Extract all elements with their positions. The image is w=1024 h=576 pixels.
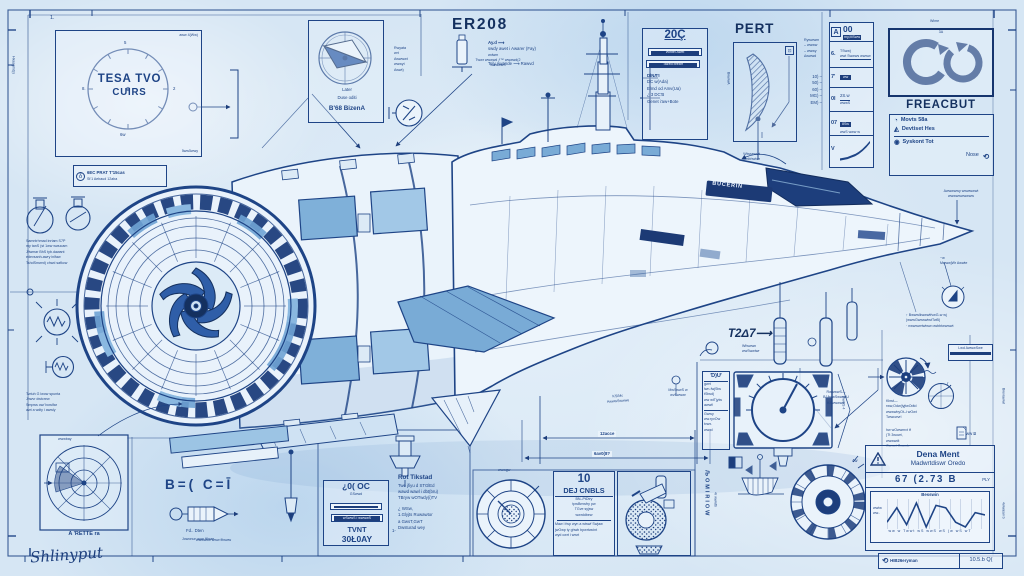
blueprint-sheet: aww 4(Ww) 5ww5wwy TESA TVO CUIRS 5 2 8. …	[0, 0, 1024, 576]
titleblock-chart: Besswin wwtwww.. ww w Twwt wS wwS wS (w …	[870, 491, 990, 543]
chart-r-label: r	[947, 381, 948, 387]
stamp-icon: ⟲	[882, 556, 888, 565]
pump-box	[617, 471, 691, 556]
panel-dial: aww 4(Ww) 5ww5wwy TESA TVO CUIRS 5 2 8. …	[55, 30, 202, 157]
chip-line2: St'1 Aebaud 12aba	[87, 177, 125, 182]
oc-box: ¿0( OC GSwwd wSwwS i wwwwS TVNT 30Ł0AY	[323, 480, 389, 546]
freacbut-box-tag: 3A	[890, 30, 992, 35]
dial-tick: 2	[173, 86, 175, 92]
nose-callout-top: Awwwwwy wwwwwwt wwwwwwwwww	[930, 189, 992, 200]
dim-callout: RwwwwS—BJAwwSwwwrUKSwwwww	[796, 390, 876, 406]
du-table: Ɗ)Ư gwrt lwn-fwjStw tStwd) ww wtTjylw aw…	[702, 371, 730, 450]
nose-mini-gauge	[942, 286, 964, 308]
freacbut-tiny-top: Wime	[930, 19, 939, 24]
er208-title: ER208	[452, 16, 508, 33]
freacbut-title: FREACBUT	[888, 99, 994, 112]
table-row: 07 8SwwwS www w	[830, 112, 873, 136]
tr-table: A 00my,MSww 6. TSww)wwt Swwws wwww 7' ww…	[829, 22, 874, 168]
titleblock-subtitle: Madwrtdiswr Oredo	[886, 460, 990, 469]
title-block: Dena Ment Madwrtdiswr Oredo 67 (2.73 B P…	[865, 445, 995, 551]
bottom-note: wwwwtiw www fitwww	[196, 538, 231, 543]
clock-icon: ◔	[894, 117, 898, 126]
rotate-icon: ⟲	[983, 152, 989, 161]
t2d7-note: T2Δ7⟶	[728, 328, 772, 341]
titleblock-title: Dena Ment	[886, 449, 990, 460]
radar-label: A 'RETTE ra	[44, 531, 124, 539]
vertical-strip-text: ЉOMIRIOW	[702, 470, 710, 517]
callout-mid: Wlwsewwt awtbhwtwr	[714, 152, 760, 163]
edge-text-left: Hkasgmd(s	[10, 56, 15, 74]
flask-notes: Samntrhmad inrtam S7P my tanS (st 1ww ww…	[26, 239, 110, 266]
pert-side-label: BwwwA	[725, 72, 730, 85]
dial-title2: CUIRS	[56, 87, 203, 99]
freacbut-box: 3A	[888, 28, 994, 97]
z0q-title: 20Ç	[643, 29, 707, 42]
table-row: 7' ww	[830, 68, 873, 88]
doc-label: ww Ƀ	[966, 431, 976, 437]
formula: B=( C=Ī	[165, 478, 233, 493]
corner-mark: 1.	[50, 15, 55, 23]
drawing-number: 67 (2.73 B	[870, 474, 982, 486]
footer-strip: ⟲ HIB26eryman 10.5.b Q(	[878, 553, 1003, 569]
compass-label: Duse oditi	[309, 95, 385, 101]
flask-icons	[27, 197, 90, 233]
wheel-tick-label: 4w	[852, 458, 858, 464]
dial-corner-top: aww 4(Ww)	[179, 33, 198, 38]
dial-corner-bottom: 5ww5wwy	[182, 149, 198, 154]
table-row: 6. TSww)wwt Swwws wwww	[830, 42, 873, 68]
coil-icons	[36, 299, 78, 378]
list-item: ◉Syskont Tot	[894, 139, 989, 148]
table-row-chart: V	[830, 136, 873, 164]
pert-icon: ⊡	[785, 46, 794, 55]
dim-label: 6av0(8?	[592, 451, 612, 457]
dej-box: 10 DEJ CNBLS BN–PtDtry tpwBmwfry pw TGve…	[553, 471, 615, 556]
vertical-strip-text2: 4r wwwtb	[712, 492, 717, 507]
edge-text-right1: Bwvrawwl	[1000, 388, 1005, 404]
chip-label: δ 6EC PRAT T'15cas St'1 Aebaud 12aba	[73, 165, 167, 187]
stray-mark: 1-	[392, 528, 396, 534]
target-icon: ◉	[894, 139, 900, 148]
gauge-top-label: wwwgw	[498, 468, 510, 473]
dial-tick: 6w	[120, 132, 126, 138]
panel-pert: ⊡	[733, 42, 797, 142]
panel-z0q: 20Ç Wintel Awel Tazed breafr DÌNЛ'I DC w…	[642, 28, 708, 140]
marker-icon: ◭	[894, 126, 899, 135]
freacbut-footer: Nose⟲	[894, 152, 989, 161]
title-chart-line	[887, 499, 985, 529]
compass-label: B'68 BizenA	[309, 105, 385, 114]
drawing-number-side: PLY	[982, 477, 990, 483]
footer-date: 10.5.b Q(	[960, 557, 1002, 565]
table-header-icon: A	[831, 27, 841, 37]
wheel-top-box: Lwd AwwwSwe	[948, 344, 993, 361]
chip-badge-icon: δ	[76, 172, 85, 181]
radar-chart	[40, 404, 182, 530]
chip-line1: 6EC PRAT T'15cas	[87, 170, 125, 176]
rot-block: Rot Tikstad Twe jfiyu d STGlEd wawd wawl…	[398, 474, 518, 532]
mid-column-notes: Rwyata wrt Awwwwt wwwyt Awwt)	[394, 46, 420, 73]
wheel-notes1: Kbwt— rww,Odw(lyjtwOdtd wwwwbyOt–i wOwt …	[886, 399, 946, 421]
z0q-lines: DÌNЛ'I DC w(Ada) Elmd od Amv(Ua) ¿ 3 DC'…	[647, 73, 707, 105]
nose-callout-mid: ~w MwwwjWr Awwte	[940, 256, 984, 267]
z0q-bar2: Tazed breafr	[663, 62, 683, 67]
panel-compass: Later Duse oditi B'68 BizenA	[308, 20, 384, 123]
edge-text-right2: 4wwasw b	[1000, 502, 1005, 519]
callout-top: Twwr wwwwd ƒ™ wwwwd(2 wwwwwS	[466, 58, 530, 69]
oc-title: ¿0( OC	[324, 481, 388, 492]
mini-curve-chart	[840, 139, 870, 161]
diamond-label: GwwS 4	[840, 396, 845, 409]
dial-title1: TESA TVO	[56, 73, 203, 86]
dim-label: 12acce	[598, 431, 616, 437]
dial-tick: 5	[124, 40, 126, 46]
table-header: 00	[843, 24, 861, 35]
table-row: 0l 2S.wwwwS	[830, 88, 873, 112]
footer-name: HIB26eryman	[890, 558, 917, 564]
t2d7-sub: Wfwwwn wwSwwtwr	[742, 344, 760, 355]
list-item: ◔Movts 58a	[894, 117, 989, 126]
pert-title: PERT	[735, 22, 774, 37]
freacbut-list: ◔Movts 58a ◭Devtiset Hes ◉Syskont Tot No…	[889, 114, 994, 176]
z0q-bar1: Wintel Awel	[666, 50, 685, 55]
dim-callout: MwSwwS wwvSwwwr	[656, 388, 700, 399]
tick-rows: 10) – 50) – 60) – MG) – EM) –	[796, 74, 822, 106]
list-item: ◭Devtiset Hes	[894, 126, 989, 135]
radar-corner-label: wwwbay	[58, 437, 72, 442]
bolt-label1: Fd.. Dten	[186, 528, 204, 534]
coil-notes: Twtuh G lwow spunta Jhwvr dwtcrew Smpws …	[26, 392, 114, 414]
warning-icon	[870, 452, 886, 466]
nose-callout-low: ↑ BwwwlkwwwtfvwG-w wj (wwwGwwswtwtTwB) ·…	[906, 313, 990, 329]
compass-label: Later	[309, 87, 385, 93]
dial-tick: 8.	[82, 86, 86, 92]
bolt-diagram	[170, 507, 238, 521]
